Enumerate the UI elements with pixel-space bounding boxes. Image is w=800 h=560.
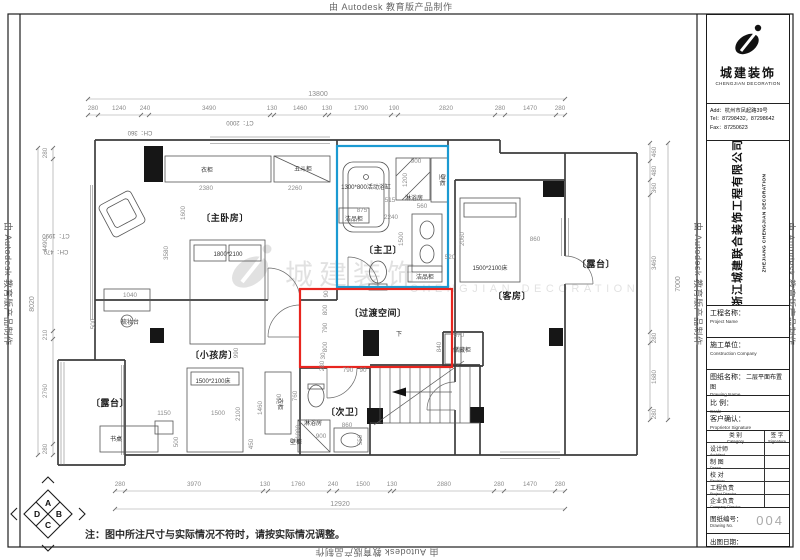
plan-label: 800 — [322, 304, 329, 315]
plan-label: 1500*2100床 — [472, 264, 507, 272]
field-client-confirm: 客户确认： Proprietor Signature — [707, 411, 789, 430]
compass-label-a: A — [45, 498, 51, 508]
plan-label: 870 — [454, 332, 465, 339]
center-watermark-cn: 城建装饰 — [285, 259, 421, 290]
table-row-project-director: 工程负责Project Director — [707, 481, 789, 494]
plan-label: CH：360 — [127, 129, 152, 135]
plan-label: 12920 — [330, 501, 350, 508]
plan-label: 130 — [267, 105, 278, 112]
field-label-en: Project Name — [710, 319, 786, 324]
plan-label: 〔过渡空间〕 — [349, 307, 406, 318]
plan-label: 240 — [140, 105, 151, 112]
plan-label: 2260 — [288, 185, 303, 192]
plan-label: 1760 — [291, 481, 306, 488]
plan-label: 2760 — [42, 384, 49, 399]
plan-label: 1500 — [398, 232, 405, 247]
desk — [100, 426, 158, 452]
field-drawing-name: 图纸名称：二层平面布置图 Drawing Name — [707, 369, 789, 395]
autodesk-watermark-inner-right: 由 Autodesk 教育版产品制作 — [692, 222, 705, 346]
plan-label: 860 — [530, 236, 541, 243]
plan-label: 280 — [319, 360, 326, 371]
plan-label: 860 — [342, 422, 353, 429]
plan-label: 7000 — [675, 276, 682, 292]
plan-label: 450 — [248, 438, 255, 449]
field-label: 客户确认： — [710, 414, 786, 424]
plan-label: 900 — [316, 433, 327, 440]
table-row-architect: 设计师Architect — [707, 442, 789, 455]
table-row-company-director: 企业负责Company Director — [707, 494, 789, 507]
window-lines — [61, 137, 569, 465]
company-tel: Tel：87298432，87298642 — [710, 115, 786, 124]
plan-label: 〔次卫〕 — [326, 406, 364, 417]
plan-label: 1200 — [402, 173, 409, 188]
field-label: 工程名称： — [710, 308, 786, 318]
plan-label: 1460 — [257, 401, 264, 416]
plan-label: 280 — [555, 105, 566, 112]
plan-label: 1460 — [293, 105, 308, 112]
plan-label: 190 — [389, 105, 400, 112]
plan-label: 3490 — [202, 105, 217, 112]
plan-label: 1790 — [354, 105, 369, 112]
compass-label-c: C — [45, 520, 51, 530]
drawing-number-block: 图纸编号： Drawing No. 004 — [707, 507, 789, 533]
revision-note: 注：图中所注尺寸与实际情况不符时，请按实际情况调整。 — [85, 528, 345, 541]
plan-label: CT：2000 — [226, 119, 254, 125]
plan-label: 1240 — [112, 105, 127, 112]
compass-label-b: B — [56, 509, 62, 519]
plan-label: 3460 — [651, 256, 658, 271]
autodesk-watermark-top: 由 Autodesk 教育版产品制作 — [329, 0, 453, 13]
plan-label: 90 — [323, 290, 330, 298]
sofa — [98, 190, 147, 239]
plan-label: 13800 — [308, 91, 328, 98]
toilet-second — [308, 385, 324, 407]
dimension-lines — [36, 97, 670, 511]
floor-plan-drawing: 城建装饰 CHENGJIAN DECORATION — [0, 0, 800, 560]
signature-header: 签 字 — [765, 431, 789, 439]
plan-label: 280 — [494, 481, 505, 488]
field-label: 施工单位： — [710, 340, 786, 350]
field-label-en: Construction Company — [710, 351, 786, 356]
plan-label: 840 — [436, 341, 443, 352]
plan-label: 1470 — [523, 481, 538, 488]
company-logo: 城建装饰 CHENGJIAN DECORATION — [707, 15, 789, 103]
plan-label: 2820 — [439, 105, 454, 112]
plan-label: 900 — [411, 158, 422, 165]
plan-label: 875 — [357, 207, 368, 214]
wardrobe-hatch — [165, 156, 271, 182]
title-block: 城建装饰 CHENGJIAN DECORATION Add：杭州市凤起路39号 … — [706, 14, 790, 547]
company-name-block: 浙江城建联合装饰工程有限公司 ZHEJIANG CHENGJIAN DECORA… — [707, 140, 789, 305]
plan-label: 1500 — [211, 410, 226, 417]
plan-label: 280 — [651, 332, 658, 343]
company-logo-icon — [728, 20, 768, 58]
stairs — [370, 361, 480, 425]
plan-label: 〔主卫〕 — [364, 244, 402, 255]
table-row-drawn: 制 图Drawn — [707, 455, 789, 468]
drawing-number: 004 — [743, 513, 787, 528]
plan-label: 书桌 — [110, 435, 122, 443]
plan-label: 储藏柜 — [453, 346, 471, 354]
plan-label: 280 — [555, 481, 566, 488]
plan-label: 梳妆台 — [121, 318, 139, 326]
plan-label: 2380 — [199, 185, 214, 192]
plan-label: 280 — [88, 105, 99, 112]
plan-label: 280 — [42, 443, 49, 454]
plan-label: 1040 — [123, 292, 138, 299]
plan-label: 〔露台〕 — [91, 397, 129, 408]
elevation-compass: A B C D — [11, 477, 85, 551]
plan-label: 520 — [445, 254, 456, 261]
plan-label: 550 — [357, 434, 364, 445]
plan-label: CT：1990 — [42, 232, 70, 238]
plan-label: 515 — [385, 197, 396, 204]
brand-name: 城建装饰 — [707, 64, 789, 81]
plan-label: 下 — [396, 331, 402, 338]
drawing-no-label: 图纸编号： — [710, 513, 743, 523]
plan-label: 1680 — [651, 370, 658, 385]
company-contact: Add：杭州市凤起路39号 Tel：87298432，87298642 Fax：… — [707, 103, 789, 141]
category-header: 类 别 — [707, 431, 764, 439]
autodesk-watermark-left: 由 Autodesk 教育版产品制作 — [2, 222, 15, 346]
signature-table-header: 类 别Category 签 字Signature — [707, 430, 789, 442]
plan-label: 壁柜 — [438, 174, 446, 186]
plan-label: 8020 — [29, 296, 36, 312]
plan-label: 90 — [359, 367, 367, 374]
plan-label: 210 — [42, 329, 49, 340]
plan-label: 1150 — [157, 410, 171, 417]
field-project-name: 工程名称： Project Name — [707, 305, 789, 337]
field-issue-date: 出图日期： — [707, 533, 789, 546]
plan-label: 2240 — [384, 214, 399, 221]
plan-label: 〔小孩房〕 — [190, 349, 238, 360]
plan-label: 五斗柜 — [294, 165, 312, 173]
plan-label: 130 — [387, 481, 398, 488]
plan-label: 2060 — [459, 232, 466, 247]
furniture-fixtures — [98, 156, 520, 452]
company-name-en: ZHEJIANG CHENGJIAN DECORATION — [763, 174, 768, 273]
plan-label: 800 — [322, 341, 329, 352]
plan-label: 1600 — [180, 206, 187, 221]
plan-label: 1500*2100床 — [195, 377, 230, 385]
plan-label: 3580 — [163, 246, 170, 261]
cad-floor-plan-sheet: 城建装饰 CHENGJIAN DECORATION — [0, 0, 800, 560]
plan-label: 〔露台〕 — [577, 258, 615, 269]
plan-label: 1300*800活动浴缸 — [341, 183, 391, 191]
plan-label: 淋浴房 — [405, 194, 423, 202]
plan-label: 30 — [320, 352, 327, 360]
plan-label: 790 — [276, 393, 283, 404]
table-row-revision: 校 对Revision — [707, 468, 789, 481]
plan-label: 〔主卧房〕 — [201, 212, 249, 223]
plan-label: 1470 — [523, 105, 538, 112]
company-address: Add：杭州市凤起路39号 — [710, 107, 786, 116]
plan-label: 130 — [260, 481, 271, 488]
plan-label: 4490 — [42, 238, 49, 253]
compass-label-d: D — [34, 509, 40, 519]
field-construction-company: 施工单位： Construction Company — [707, 337, 789, 369]
field-scale: 比 例： Scale — [707, 395, 789, 411]
plan-label: 3970 — [187, 481, 202, 488]
plan-label: 280 — [495, 105, 506, 112]
plan-label: 1500 — [356, 481, 371, 488]
plan-label: 500 — [90, 318, 97, 329]
plan-label: 790 — [343, 367, 354, 374]
plan-label: 280 — [42, 147, 49, 158]
plan-label: 280 — [651, 408, 658, 419]
plan-label: 560 — [417, 203, 428, 210]
plan-label: 〔客房〕 — [493, 290, 531, 301]
plan-label: 480 — [651, 165, 658, 176]
plan-label: 500 — [173, 436, 180, 447]
plan-label: 洁品柜 — [345, 215, 363, 223]
plan-label: 衣柜 — [201, 166, 213, 174]
field-label: 图纸名称： — [710, 374, 745, 381]
brand-name-en: CHENGJIAN DECORATION — [707, 81, 789, 86]
plan-label: 360 — [651, 182, 658, 193]
plan-label: 130 — [322, 105, 333, 112]
stairs-direction-arrow — [392, 388, 406, 397]
plan-label: 1800*2100 — [213, 252, 243, 258]
plan-label: 280 — [115, 481, 126, 488]
company-name-cn: 浙江城建联合装饰工程有限公司 — [729, 140, 745, 305]
plan-label: 790 — [322, 322, 329, 333]
autodesk-watermark-bottom: 由 Autodesk 教育版产品制作 — [315, 546, 439, 559]
plan-label: 洁品柜 — [416, 273, 434, 281]
company-fax: Fax：87250623 — [710, 124, 786, 133]
plan-label: 2880 — [437, 481, 452, 488]
plan-label: 1000 — [295, 425, 302, 440]
plan-label: 淋浴房 — [304, 419, 322, 427]
plan-label: 2100 — [235, 407, 242, 422]
field-label: 比 例： — [710, 398, 786, 408]
plan-label: 240 — [328, 481, 339, 488]
plan-label: 760 — [292, 390, 299, 401]
plan-label: 460 — [651, 146, 658, 157]
plan-label: 990 — [233, 347, 240, 358]
drawing-no-label-en: Drawing No. — [710, 523, 743, 528]
